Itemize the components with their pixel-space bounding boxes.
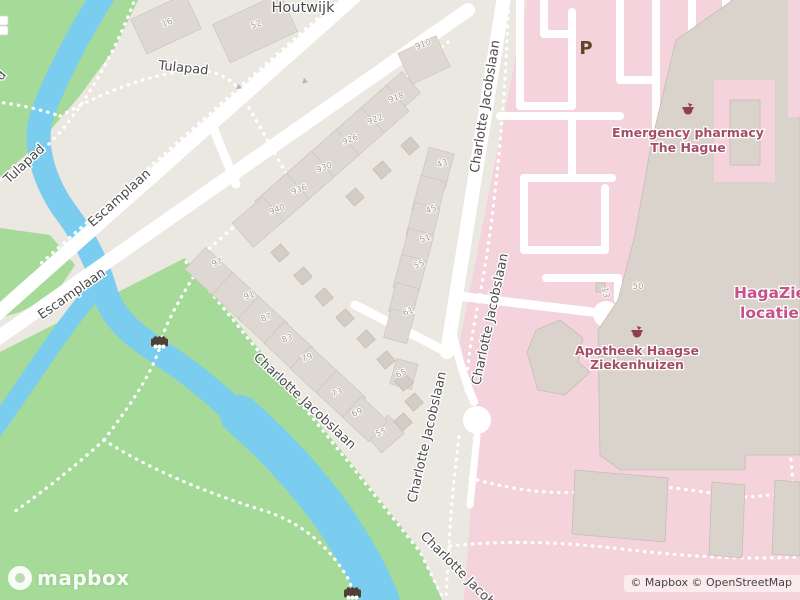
mapbox-wordmark: mapbox [37, 566, 130, 590]
svg-text:HagaZiek: HagaZiek [734, 284, 800, 302]
attribution[interactable]: © Mapbox © OpenStreetMap [624, 575, 800, 592]
bridge-icon [344, 587, 361, 599]
parking-p-label: P [579, 38, 592, 59]
svg-text:Apotheek Haagse: Apotheek Haagse [575, 343, 699, 358]
mapbox-logo[interactable]: mapbox [8, 566, 130, 590]
svg-text:locatie L: locatie L [740, 304, 800, 322]
mapbox-pin-icon [8, 566, 32, 590]
bridge-icon [151, 336, 168, 348]
svg-text:Emergency pharmacy: Emergency pharmacy [612, 125, 764, 140]
turning-circle-south [463, 406, 491, 434]
map-tiles: P Emergency pharmacy The Hague Apotheek … [0, 0, 800, 600]
map-canvas[interactable]: P Emergency pharmacy The Hague Apotheek … [0, 0, 800, 600]
house-number: 13 [599, 286, 611, 298]
poi-parking: P [579, 38, 592, 59]
svg-text:Ziekenhuizen: Ziekenhuizen [590, 357, 684, 372]
svg-text:The Hague: The Hague [650, 140, 725, 155]
street-label: Houtwijk [272, 0, 336, 16]
house-number: 50 [633, 282, 644, 292]
